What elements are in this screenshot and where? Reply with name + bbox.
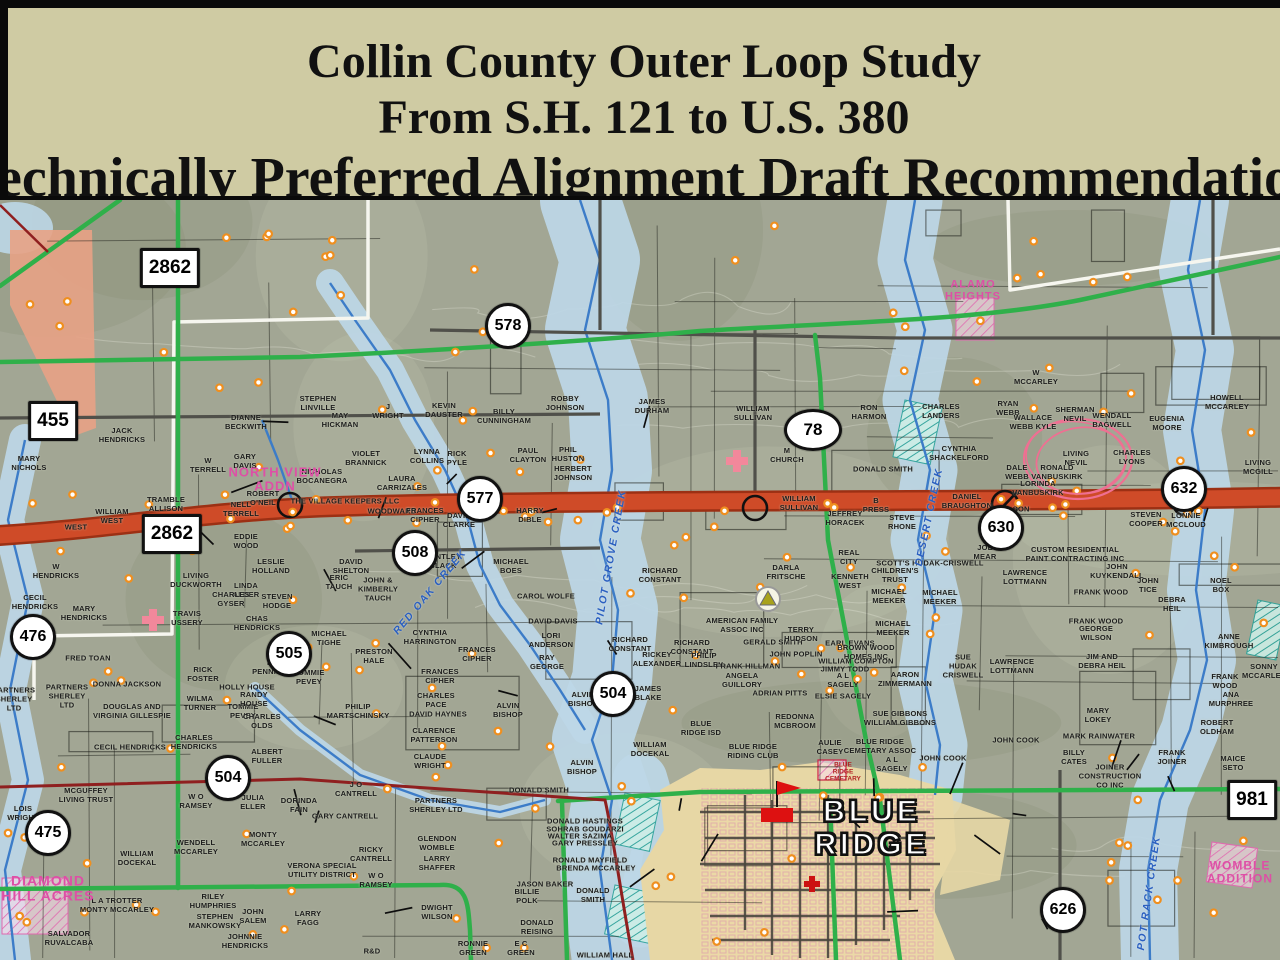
triangle-marker-icon: [756, 587, 780, 611]
map-title-line1: Collin County Outer Loop Study: [307, 34, 981, 89]
map-title-line2: From S.H. 121 to U.S. 380: [378, 90, 909, 145]
map-title-line3: Technically Preferred Alignment Draft Re…: [0, 146, 1280, 200]
map-screenshot: DIANNE BECKWITHSTEPHEN LINVILLEMAY HICKM…: [0, 0, 1280, 960]
title-banner: Collin County Outer Loop Study From S.H.…: [0, 0, 1280, 200]
